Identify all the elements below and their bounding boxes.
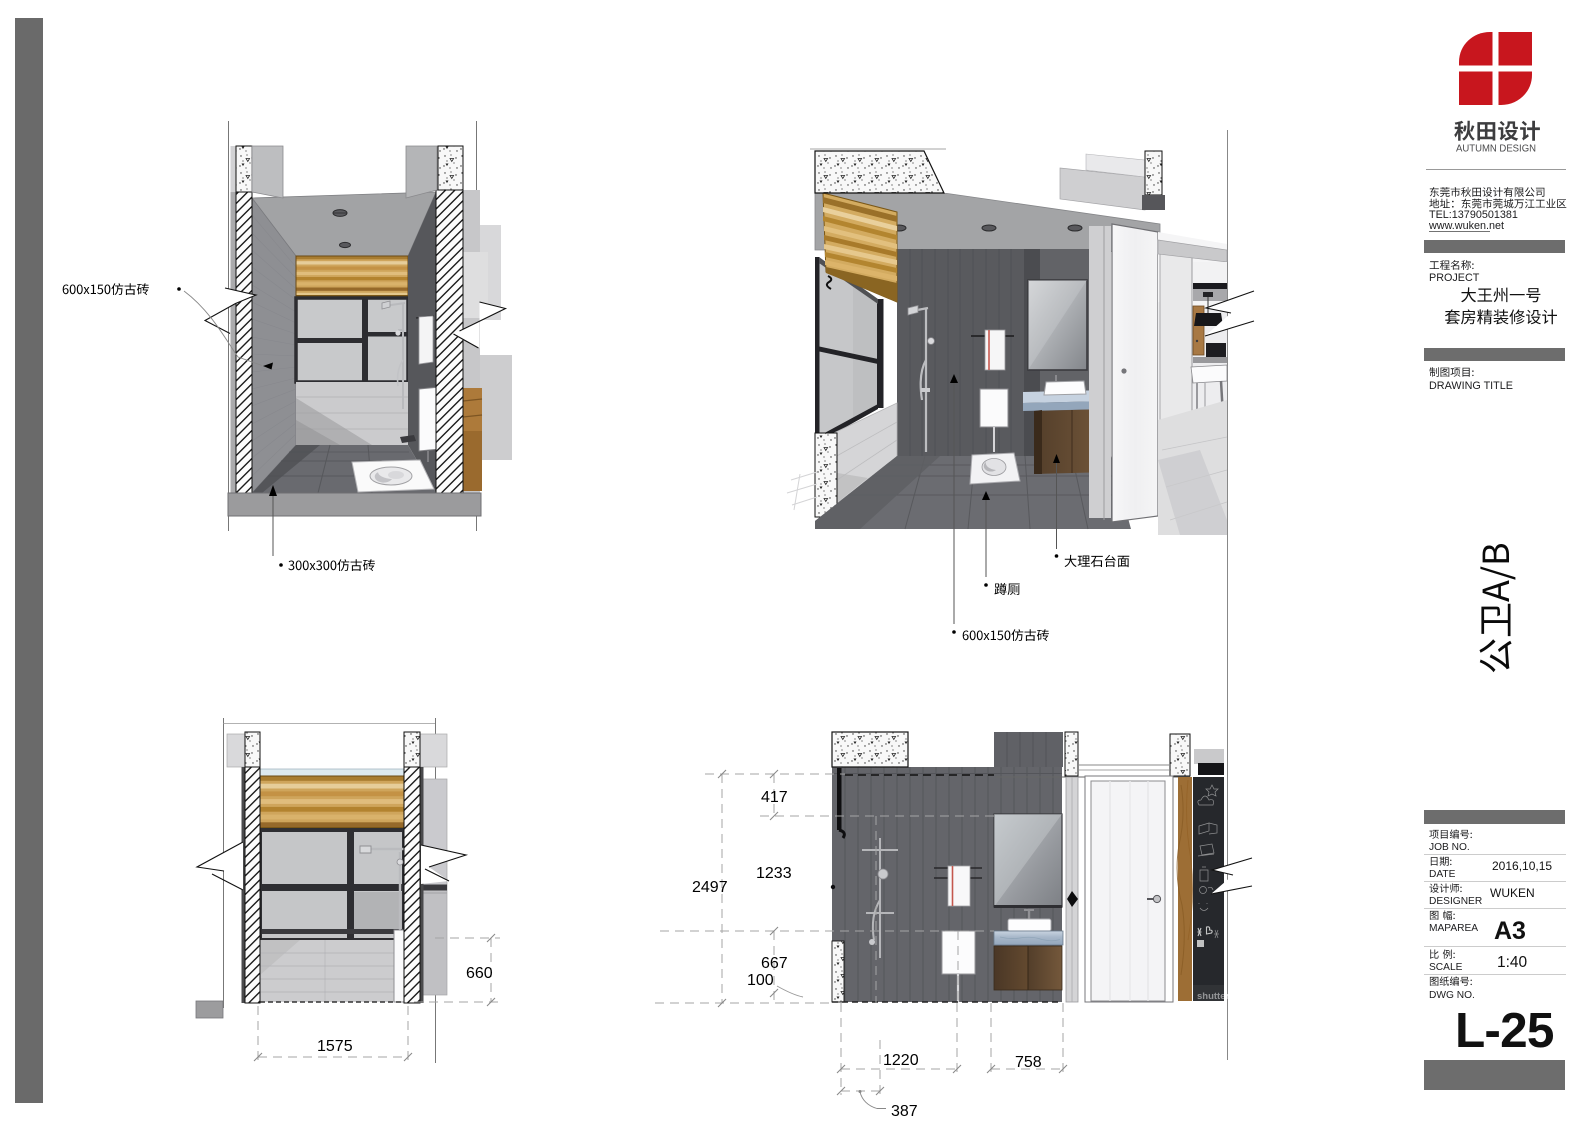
svg-text:1220: 1220	[883, 1052, 919, 1069]
svg-text:387: 387	[891, 1103, 918, 1120]
svg-text:www.wuken.net: www.wuken.net	[1428, 220, 1504, 232]
svg-text:DWG NO.: DWG NO.	[1429, 990, 1475, 1001]
svg-text:1575: 1575	[317, 1038, 353, 1055]
svg-text:2016,10,15: 2016,10,15	[1492, 859, 1552, 873]
svg-text:667: 667	[761, 955, 788, 972]
svg-text:L-25: L-25	[1455, 1003, 1554, 1058]
svg-text:417: 417	[761, 789, 788, 806]
svg-text:DRAWING TITLE: DRAWING TITLE	[1429, 380, 1513, 392]
svg-text:2497: 2497	[692, 879, 728, 896]
svg-text:PROJECT: PROJECT	[1429, 272, 1480, 284]
svg-text:100: 100	[747, 972, 774, 989]
svg-text:1233: 1233	[756, 865, 792, 882]
svg-text:660: 660	[466, 965, 493, 982]
svg-text:WUKEN: WUKEN	[1490, 886, 1535, 900]
svg-text:SCALE: SCALE	[1429, 962, 1463, 973]
svg-text:DESIGNER: DESIGNER	[1429, 896, 1482, 907]
svg-text:DATE: DATE	[1429, 869, 1456, 880]
svg-text:JOB NO.: JOB NO.	[1429, 842, 1470, 853]
svg-text:AUTUMN DESIGN: AUTUMN DESIGN	[1456, 143, 1536, 155]
svg-text:1:40: 1:40	[1497, 954, 1528, 971]
svg-text:A3: A3	[1494, 917, 1526, 945]
svg-text:758: 758	[1015, 1054, 1042, 1071]
svg-text:MAPAREA: MAPAREA	[1429, 923, 1478, 934]
